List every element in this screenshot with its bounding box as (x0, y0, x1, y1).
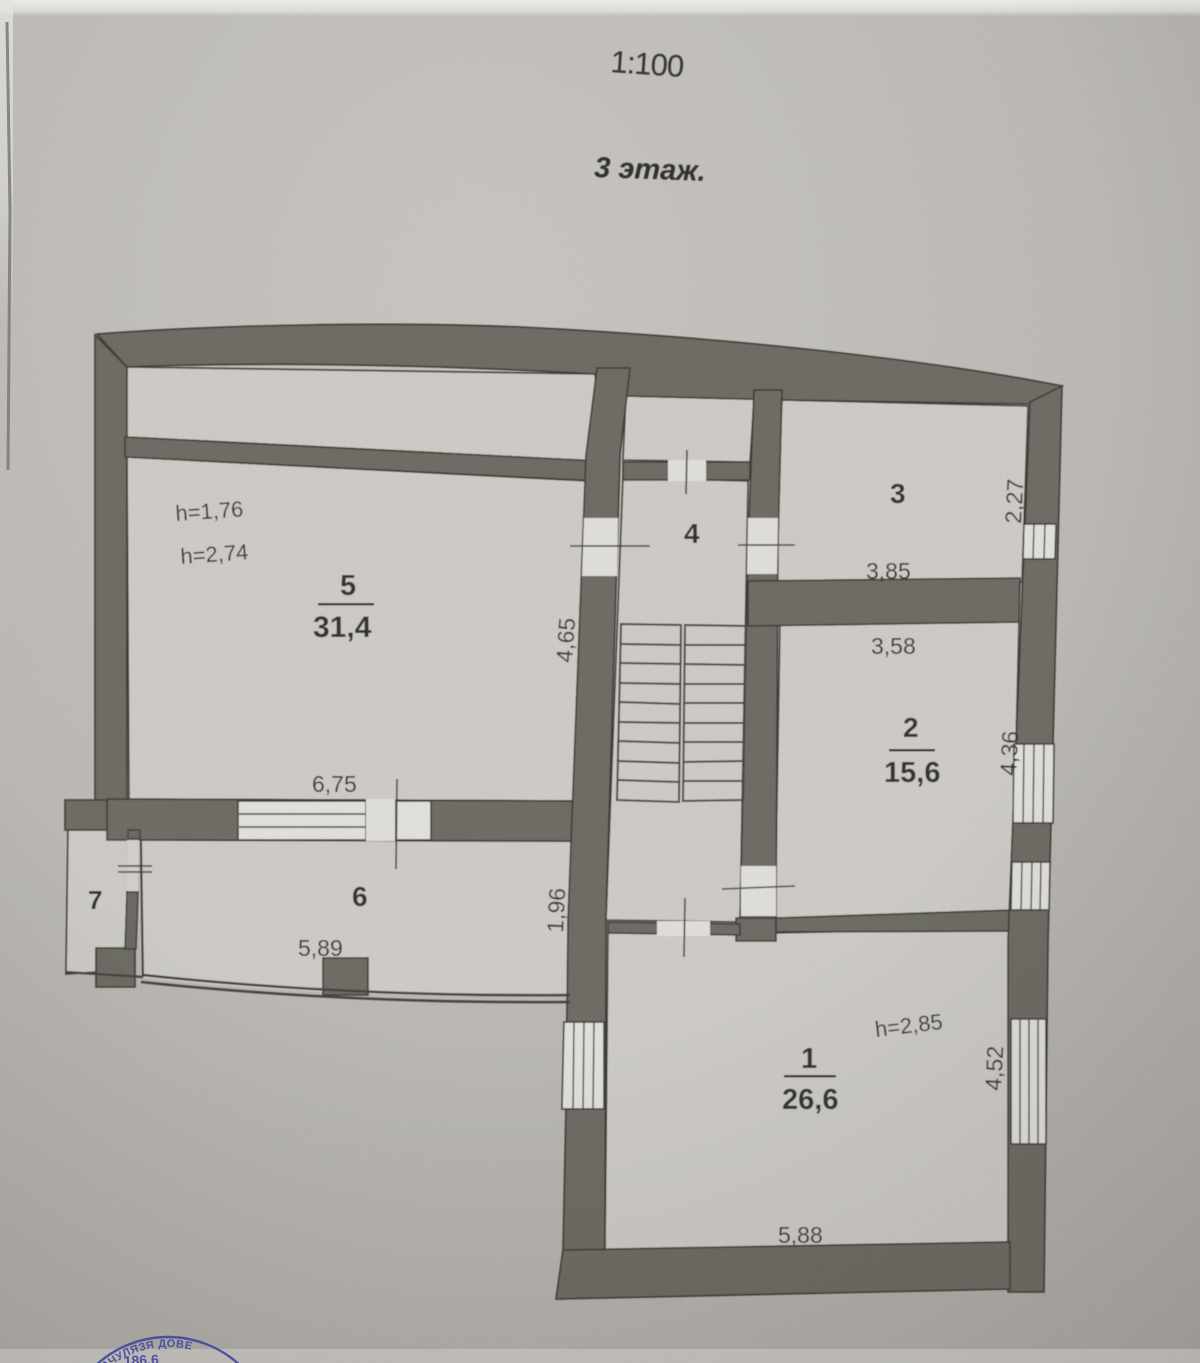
svg-text:186,6: 186,6 (123, 1351, 159, 1363)
